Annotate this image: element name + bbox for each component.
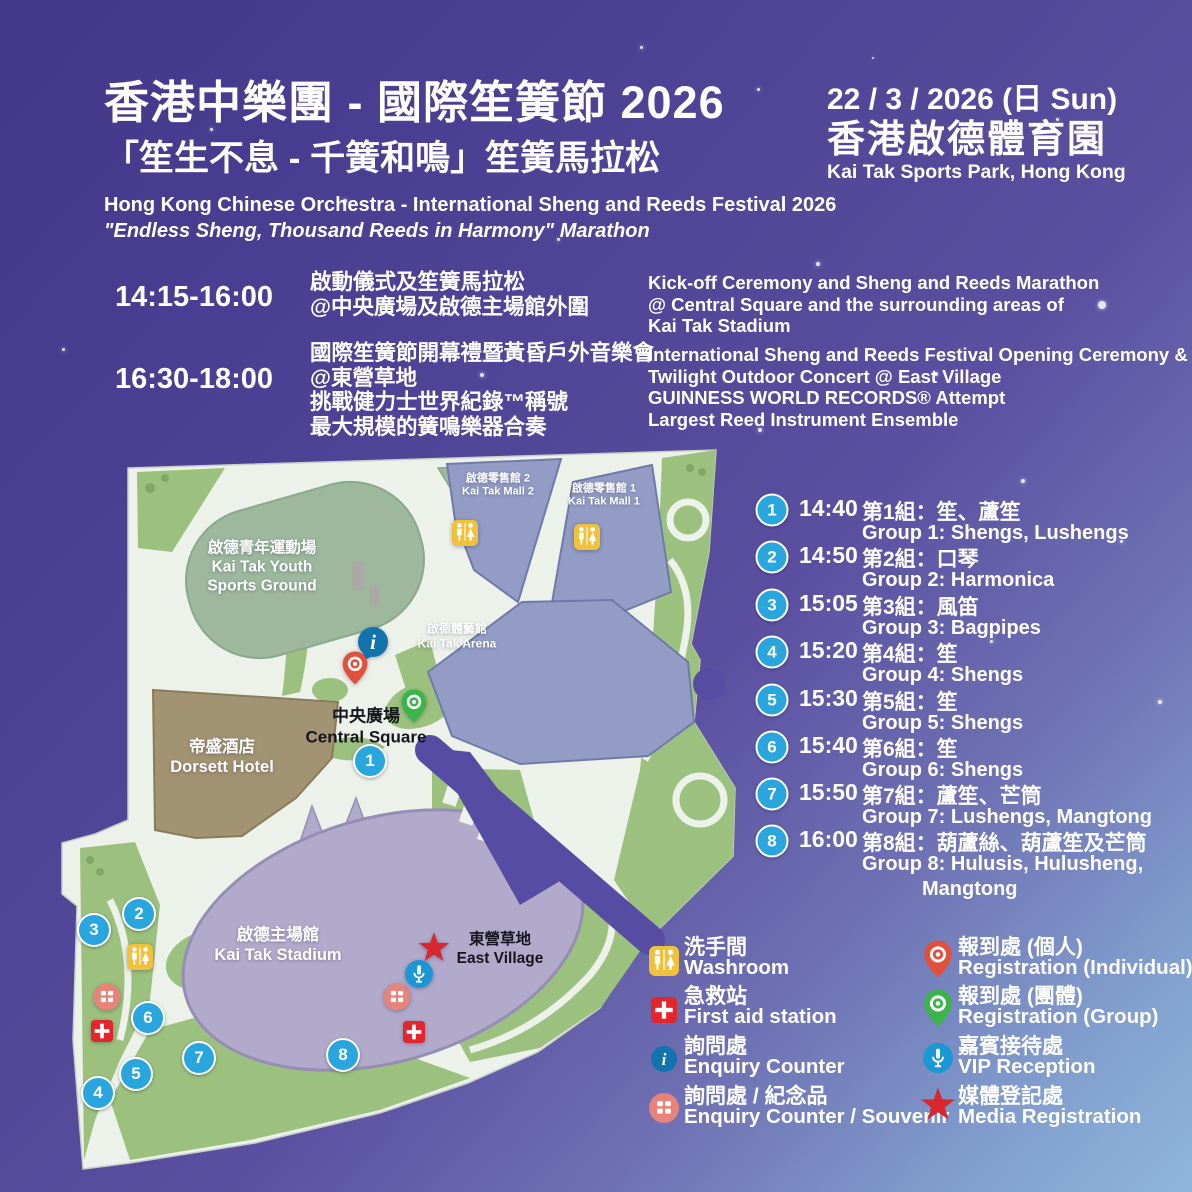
label-arena: 啟德體藝館 Kai Tak Arena — [418, 621, 497, 650]
legend-media-en: Media Registration — [958, 1105, 1141, 1129]
label-east-village: 東營草地 East Village — [457, 931, 544, 969]
label-youth-en2: Sports Ground — [207, 577, 316, 596]
media-registration-star-icon — [918, 1085, 958, 1123]
label-village-zh: 東營草地 — [457, 931, 544, 950]
registration-group-pin-icon — [401, 689, 428, 724]
group-8-number: 8 — [756, 825, 789, 858]
group-3-time: 15:05 — [799, 590, 858, 617]
washroom-icon — [574, 524, 600, 550]
map-marker-4: 4 — [81, 1076, 115, 1110]
registration-individual-pin-icon — [923, 940, 953, 979]
vip-reception-mic-icon — [923, 1043, 953, 1073]
label-youth-en1: Kai Tak Youth — [207, 559, 316, 578]
group-7-number: 7 — [756, 778, 789, 811]
label-arena-zh: 啟德體藝館 — [418, 621, 497, 636]
event-poster: 香港中樂團 - 國際笙簧節 2026 「笙生不息 - 千簧和鳴」笙簧馬拉松 Ho… — [0, 0, 1192, 1192]
label-stadium-zh: 啟德主場館 — [214, 925, 341, 945]
legend-enquiry-en: Enquiry Counter — [684, 1055, 845, 1079]
map-marker-1: 1 — [353, 744, 387, 778]
group-2-number: 2 — [756, 541, 789, 574]
legend-firstaid-en: First aid station — [684, 1005, 837, 1029]
group-5-number: 5 — [756, 684, 789, 717]
washroom-icon — [649, 946, 679, 976]
label-mall2: 啟德零售館 2 Kai Tak Mall 2 — [462, 473, 534, 500]
legend-washroom-en: Washroom — [684, 956, 789, 980]
vip-reception-mic-icon — [405, 960, 433, 988]
label-stadium-en: Kai Tak Stadium — [214, 945, 341, 965]
label-village-en: East Village — [457, 950, 544, 969]
label-mall2-zh: 啟德零售館 2 — [462, 473, 534, 486]
washroom-icon — [127, 944, 153, 970]
group-3-en: Group 3: Bagpipes — [862, 617, 1041, 640]
group-8-en-line2: Mangtong — [922, 878, 1018, 901]
map-marker-5: 5 — [119, 1057, 153, 1091]
souvenir-icon — [649, 1093, 679, 1123]
label-youth-zh: 啟德青年運動場 — [207, 540, 316, 559]
first-aid-icon — [651, 997, 677, 1023]
group-3-number: 3 — [756, 589, 789, 622]
svg-text:i: i — [662, 1050, 667, 1069]
label-hotel-en: Dorsett Hotel — [170, 757, 274, 777]
group-4-en: Group 4: Shengs — [862, 664, 1023, 687]
group-7-time: 15:50 — [799, 779, 858, 806]
group-8-en: Group 8: Hulusis, Hulusheng, — [862, 853, 1143, 876]
svg-text:i: i — [370, 630, 376, 654]
label-stadium: 啟德主場館 Kai Tak Stadium — [214, 925, 341, 965]
map-marker-8: 8 — [326, 1038, 360, 1072]
legend-reg-individual-en: Registration (Individual) — [958, 956, 1192, 980]
label-mall1-zh: 啟德零售館 1 — [568, 483, 640, 496]
legend-reg-group-en: Registration (Group) — [958, 1005, 1158, 1029]
legend-vip-en: VIP Reception — [958, 1055, 1095, 1079]
map-marker-2: 2 — [122, 897, 156, 931]
label-hotel-zh: 帝盛酒店 — [170, 737, 274, 757]
group-4-number: 4 — [756, 636, 789, 669]
label-mall1-en: Kai Tak Mall 1 — [568, 496, 640, 509]
group-6-time: 15:40 — [799, 732, 858, 759]
label-mall2-en: Kai Tak Mall 2 — [462, 486, 534, 499]
group-6-en: Group 6: Shengs — [862, 759, 1023, 782]
media-registration-star-icon — [416, 930, 452, 964]
label-hotel: 帝盛酒店 Dorsett Hotel — [170, 737, 274, 777]
group-2-time: 14:50 — [799, 542, 858, 569]
group-1-en: Group 1: Shengs, Lushengs — [862, 522, 1129, 545]
map-marker-3: 3 — [77, 913, 111, 947]
map-marker-7: 7 — [182, 1041, 216, 1075]
legend-souvenir-en: Enquiry Counter / Souvenir — [684, 1105, 949, 1129]
registration-individual-pin-icon — [342, 651, 369, 686]
group-5-en: Group 5: Shengs — [862, 712, 1023, 735]
group-7-en: Group 7: Lushengs, Mangtong — [862, 806, 1152, 829]
group-4-time: 15:20 — [799, 637, 858, 664]
first-aid-icon — [403, 1021, 425, 1043]
label-youth-ground: 啟德青年運動場 Kai Tak Youth Sports Ground — [207, 540, 316, 597]
souvenir-icon — [94, 984, 121, 1011]
label-mall1: 啟德零售館 1 Kai Tak Mall 1 — [568, 483, 640, 510]
group-5-time: 15:30 — [799, 685, 858, 712]
group-1-number: 1 — [756, 494, 789, 527]
group-2-en: Group 2: Harmonica — [862, 569, 1054, 592]
group-1-time: 14:40 — [799, 495, 858, 522]
washroom-icon — [452, 520, 478, 546]
registration-group-pin-icon — [923, 989, 953, 1028]
first-aid-icon — [91, 1020, 113, 1042]
group-8-time: 16:00 — [799, 826, 858, 853]
map-marker-6: 6 — [131, 1001, 165, 1035]
label-arena-en: Kai Tak Arena — [418, 636, 497, 651]
enquiry-icon: i — [650, 1045, 678, 1073]
group-6-number: 6 — [756, 731, 789, 764]
